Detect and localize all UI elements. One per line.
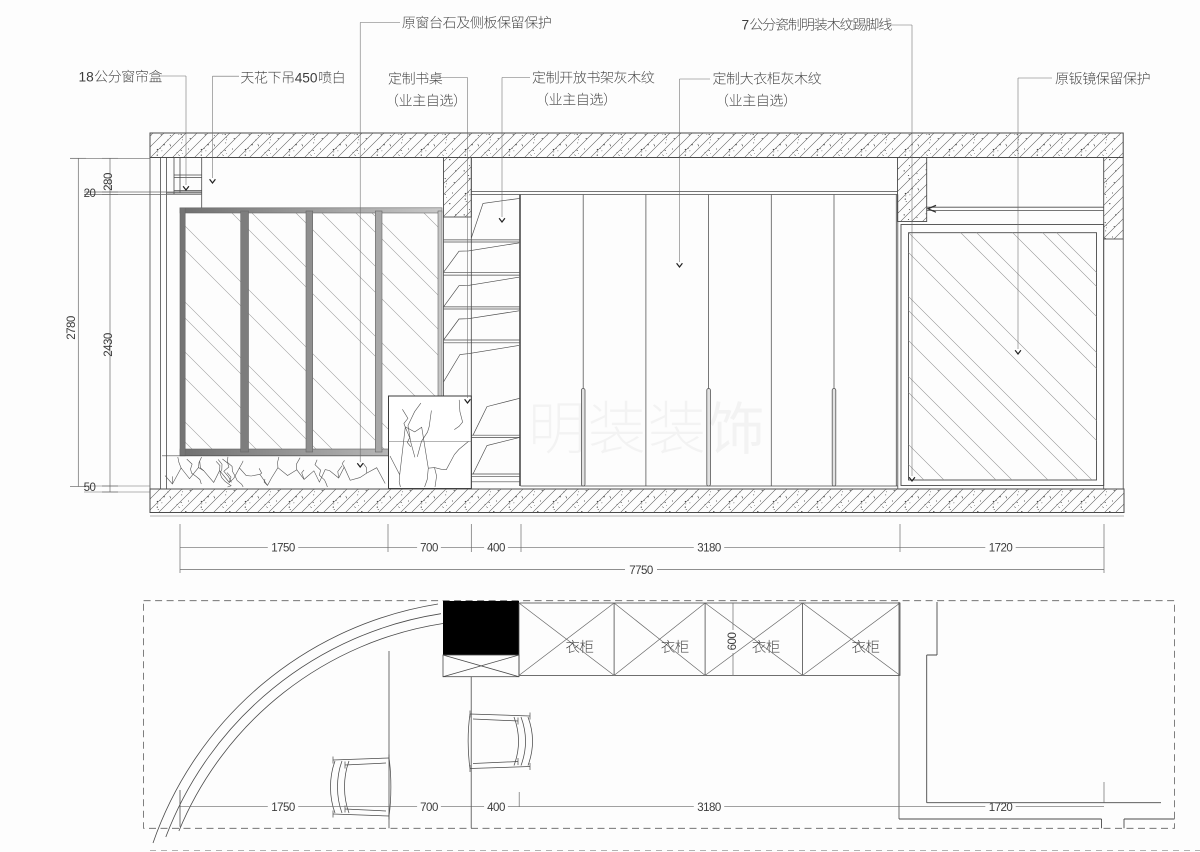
svg-text:7: 7 [742,18,750,33]
svg-text:3180: 3180 [697,543,721,555]
svg-text:450: 450 [295,71,318,86]
svg-text:7750: 7750 [629,565,653,577]
svg-text:400: 400 [487,543,505,555]
svg-text:280: 280 [103,173,115,191]
svg-text:700: 700 [420,802,438,814]
svg-text:1750: 1750 [271,543,295,555]
svg-text:50: 50 [84,482,96,494]
svg-text:饰: 饰 [708,399,765,462]
svg-text:2430: 2430 [103,333,115,357]
svg-text:3180: 3180 [697,802,721,814]
svg-text:20: 20 [84,188,96,200]
svg-text:2780: 2780 [66,316,78,340]
svg-text:1720: 1720 [989,802,1013,814]
svg-text:700: 700 [420,543,438,555]
svg-text:18: 18 [79,70,95,85]
svg-text:600: 600 [727,633,739,651]
svg-text:400: 400 [487,802,505,814]
svg-text:1750: 1750 [271,802,295,814]
svg-text:1720: 1720 [989,543,1013,555]
